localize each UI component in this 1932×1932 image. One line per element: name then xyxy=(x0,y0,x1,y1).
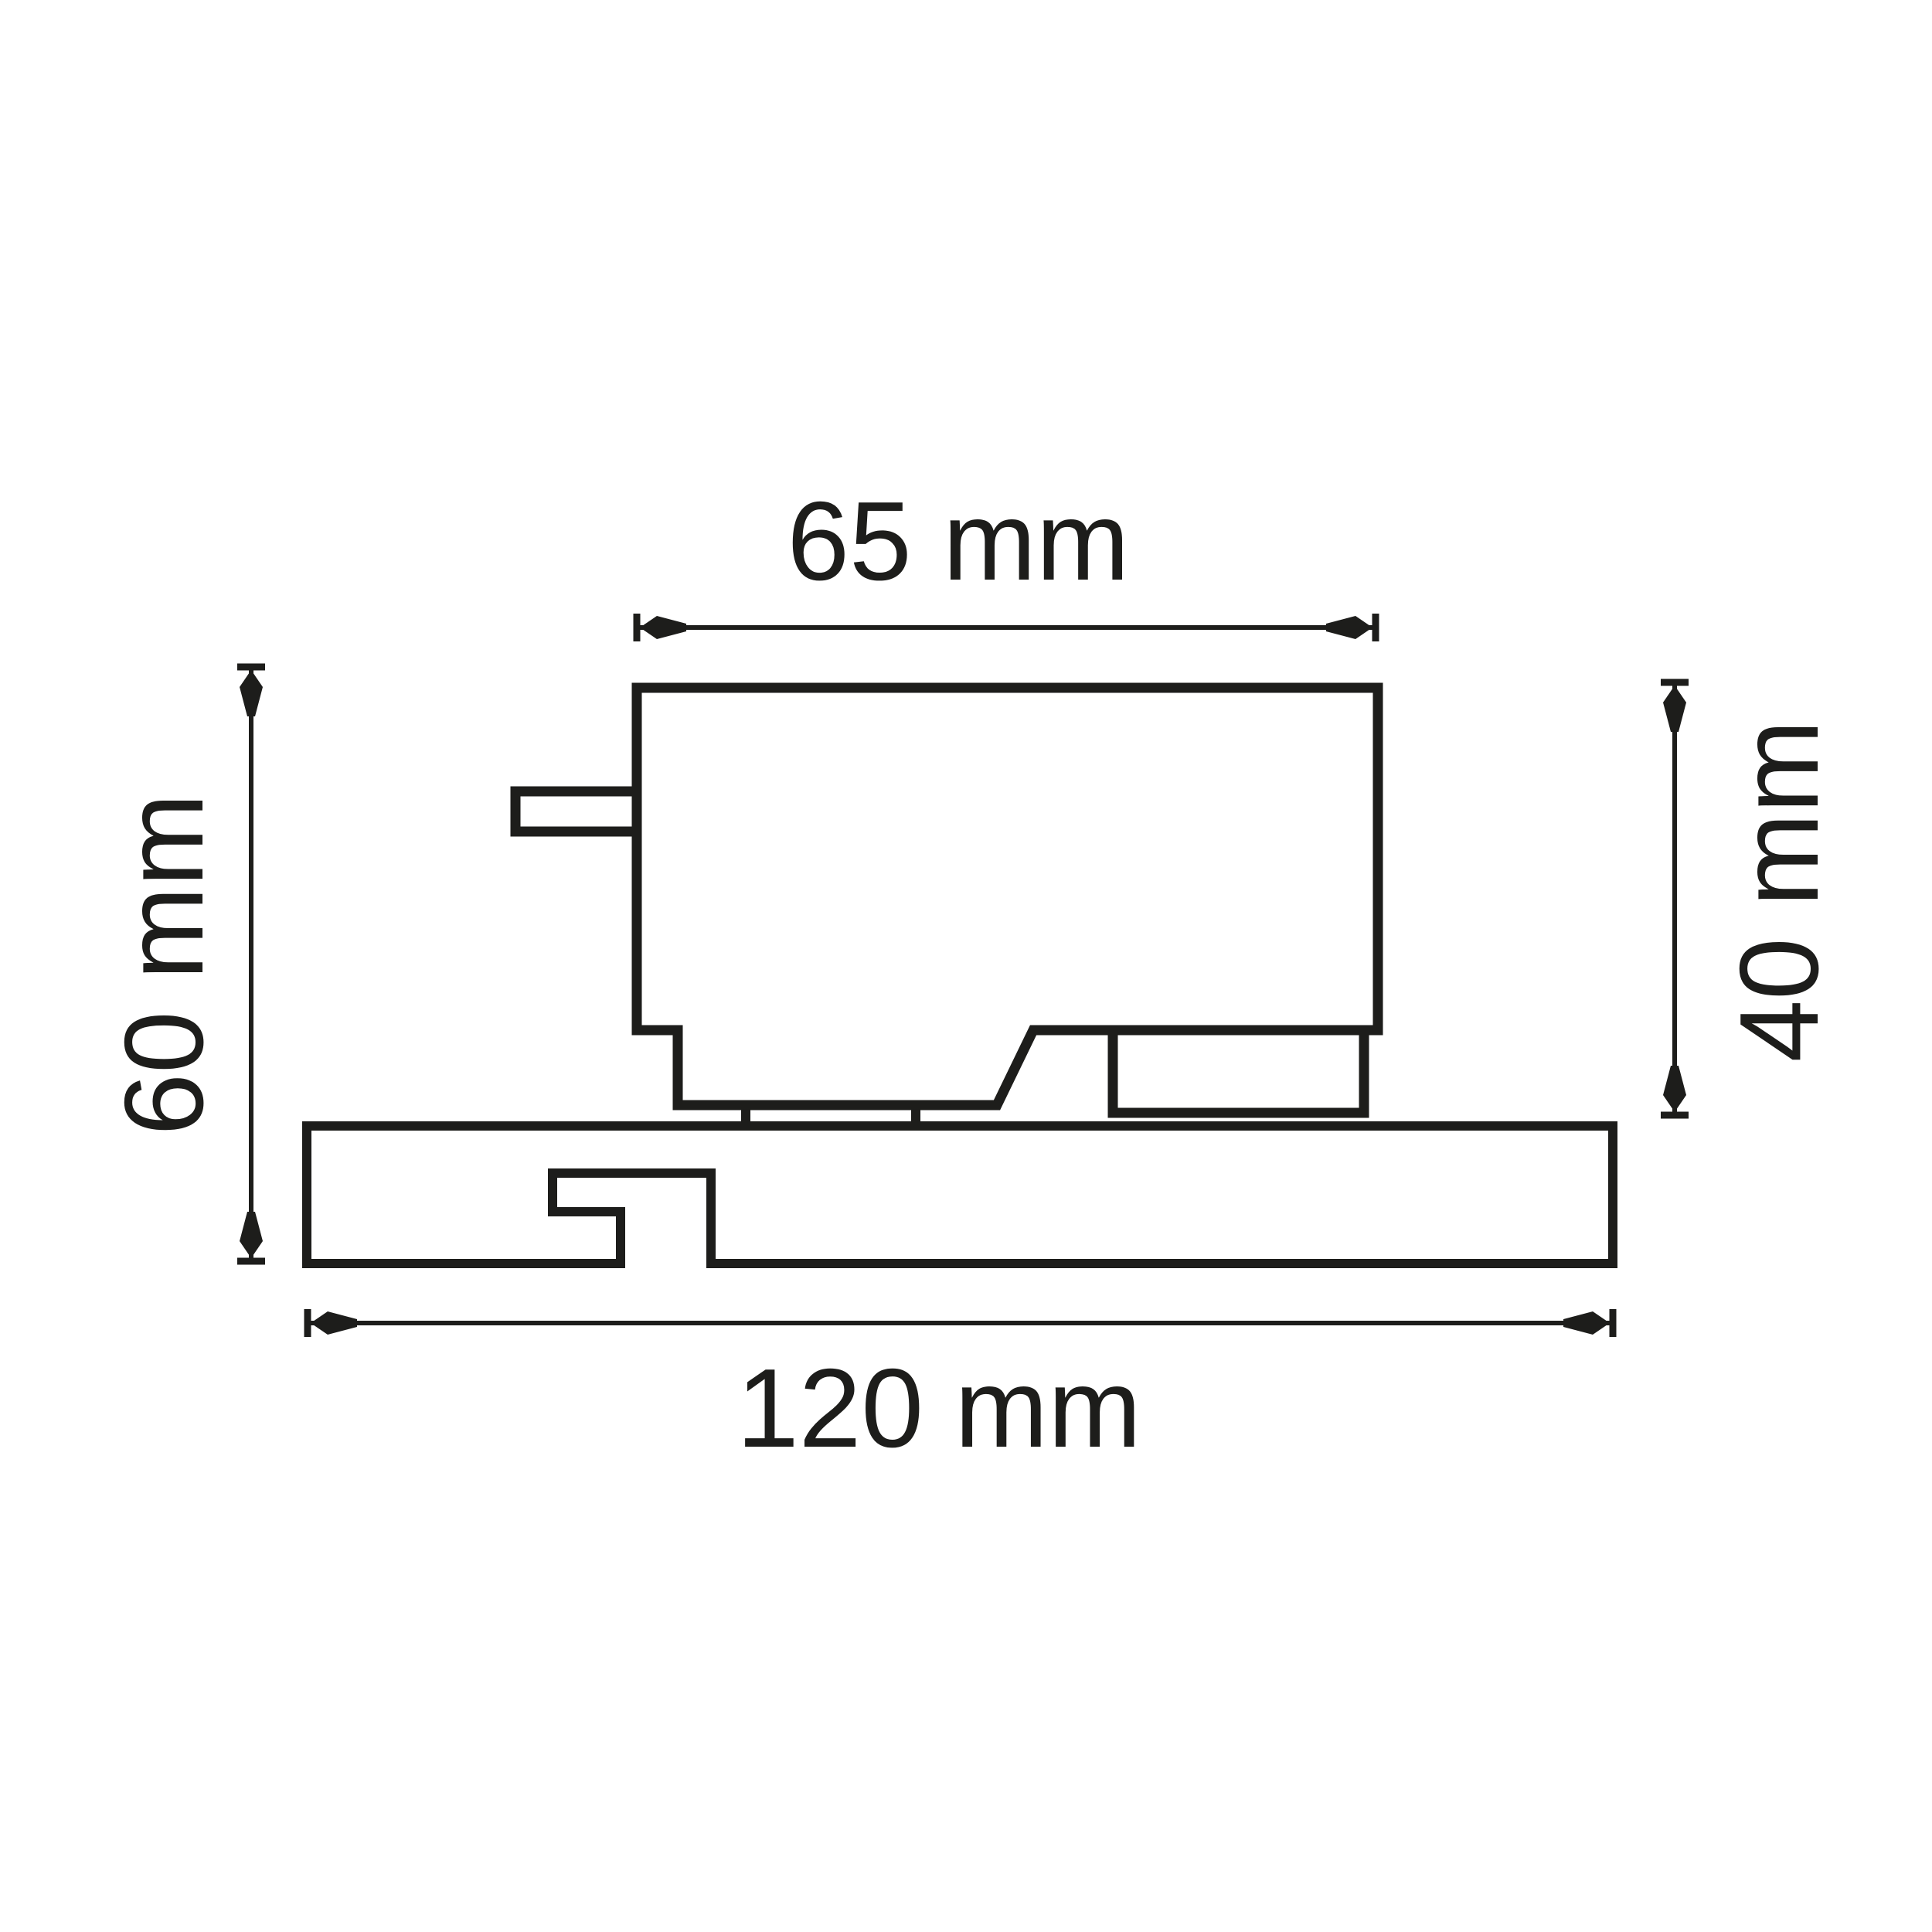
dimension-label-left: 60 mm xyxy=(101,793,226,1135)
side-tab-outline xyxy=(515,791,637,832)
dimension-right-40mm: 40 mm xyxy=(1661,682,1842,1115)
dimension-bottom-120mm: 120 mm xyxy=(308,1309,1613,1471)
arrowhead-up-icon xyxy=(1663,685,1686,732)
dimension-label-top: 65 mm xyxy=(787,478,1129,604)
dimension-label-bottom: 120 mm xyxy=(736,1345,1141,1471)
arrowhead-up-icon xyxy=(240,670,263,716)
dimension-left-60mm: 60 mm xyxy=(101,667,265,1261)
arrowhead-left-icon xyxy=(311,1311,357,1335)
arrowhead-left-icon xyxy=(640,616,686,639)
part-outlines xyxy=(307,688,1613,1264)
arrowhead-down-icon xyxy=(240,1212,263,1258)
connector-block-outline xyxy=(1113,1030,1364,1113)
arrowhead-right-icon xyxy=(1326,616,1372,639)
track-adapter-dimension-drawing: 65 mm 60 mm 40 mm 120 mm xyxy=(0,0,1932,1932)
dimension-label-right: 40 mm xyxy=(1716,719,1842,1062)
arrowhead-down-icon xyxy=(1663,1066,1686,1112)
arrowhead-right-icon xyxy=(1563,1311,1610,1335)
track-profile-outline xyxy=(307,1126,1613,1264)
dimension-drawing-canvas: 65 mm 60 mm 40 mm 120 mm xyxy=(0,0,1932,1932)
dimension-top-65mm: 65 mm xyxy=(637,478,1376,641)
